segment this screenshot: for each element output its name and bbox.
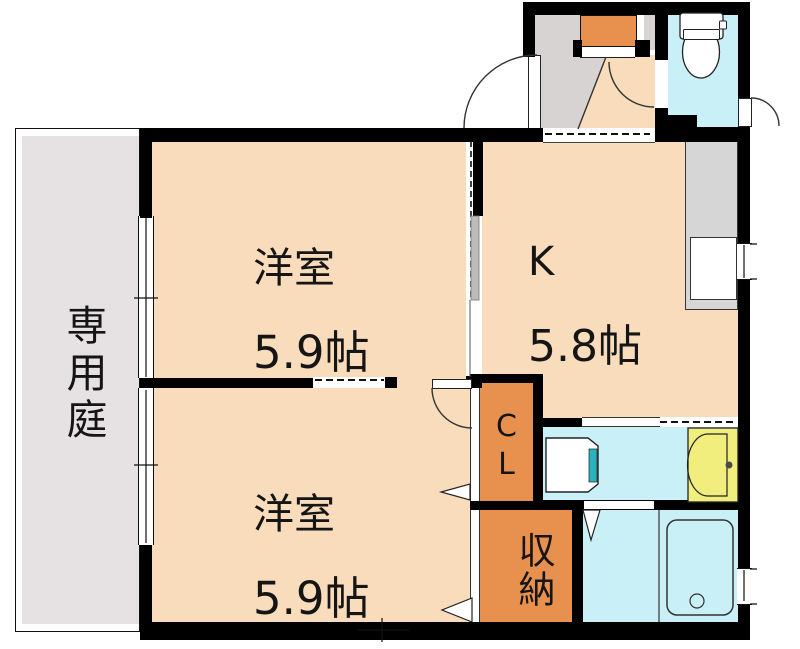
service-door-arc bbox=[751, 98, 779, 126]
storage-label: 収納 bbox=[506, 531, 560, 609]
closet-door-plane bbox=[470, 386, 480, 501]
floor-plan: 専用庭 洋室 5.9帖 K 5.8帖 洋室 5.9帖 CL 収納 bbox=[0, 0, 800, 649]
toilet-doorway bbox=[655, 60, 668, 110]
garden-label: 専用庭 bbox=[53, 304, 113, 445]
wall-washroom-top bbox=[535, 418, 582, 427]
wall-storage-right bbox=[572, 501, 583, 625]
closet-label: CL bbox=[489, 409, 524, 485]
wall-top-entrance bbox=[523, 2, 750, 15]
entrance-step-opening bbox=[543, 128, 655, 143]
wall-shoebox-stub-right bbox=[635, 40, 650, 57]
kitchen-name: K bbox=[528, 238, 642, 286]
washroom-floor bbox=[543, 427, 738, 502]
washroom-opening bbox=[582, 417, 660, 427]
wall-right-lower bbox=[738, 605, 750, 624]
wall-left-upper bbox=[140, 128, 152, 218]
window-left-top bbox=[138, 216, 154, 378]
shoe-cabinet bbox=[580, 15, 637, 47]
window-right-bathroom bbox=[737, 568, 752, 605]
window-left-bottom bbox=[138, 388, 154, 545]
window-right-kitchen bbox=[737, 243, 752, 280]
wall-shoebox-stub-left bbox=[573, 40, 582, 57]
wall-toilet-right bbox=[738, 8, 750, 98]
room-bottom-name: 洋室 bbox=[253, 490, 370, 538]
wall-right-upper bbox=[738, 127, 750, 243]
wall-partition-stub bbox=[473, 138, 483, 216]
room-top-label: 洋室 5.9帖 bbox=[253, 206, 370, 413]
wall-right-middle bbox=[738, 280, 750, 568]
room-top-name: 洋室 bbox=[253, 244, 370, 292]
wall-entrance-left bbox=[523, 2, 535, 57]
kitchen-sink bbox=[690, 237, 737, 300]
entrance-door-arc bbox=[464, 55, 537, 128]
kitchen-label: K 5.8帖 bbox=[528, 200, 642, 408]
bathroom-floor bbox=[583, 508, 738, 622]
room-door-leaf-top bbox=[432, 379, 472, 389]
entrance-door-leaf bbox=[528, 55, 541, 129]
washroom-opening-2 bbox=[660, 417, 738, 427]
kitchen-size: 5.8帖 bbox=[528, 324, 642, 370]
service-door-leaf bbox=[738, 98, 752, 127]
wall-toilet-left-1 bbox=[655, 2, 668, 60]
room-top-size: 5.9帖 bbox=[253, 330, 370, 375]
room-bottom-size: 5.9帖 bbox=[253, 576, 370, 621]
bathroom-door-gap-top bbox=[584, 501, 654, 509]
toilet-room-floor bbox=[665, 15, 738, 127]
wall-bottom bbox=[140, 622, 750, 640]
room-bottom-label: 洋室 5.9帖 bbox=[253, 452, 370, 649]
storage-door-plane bbox=[470, 510, 480, 622]
wall-divider-stub bbox=[385, 377, 397, 388]
shoe-cabinet-step bbox=[580, 47, 635, 58]
wall-toilet-bottom bbox=[655, 127, 750, 142]
